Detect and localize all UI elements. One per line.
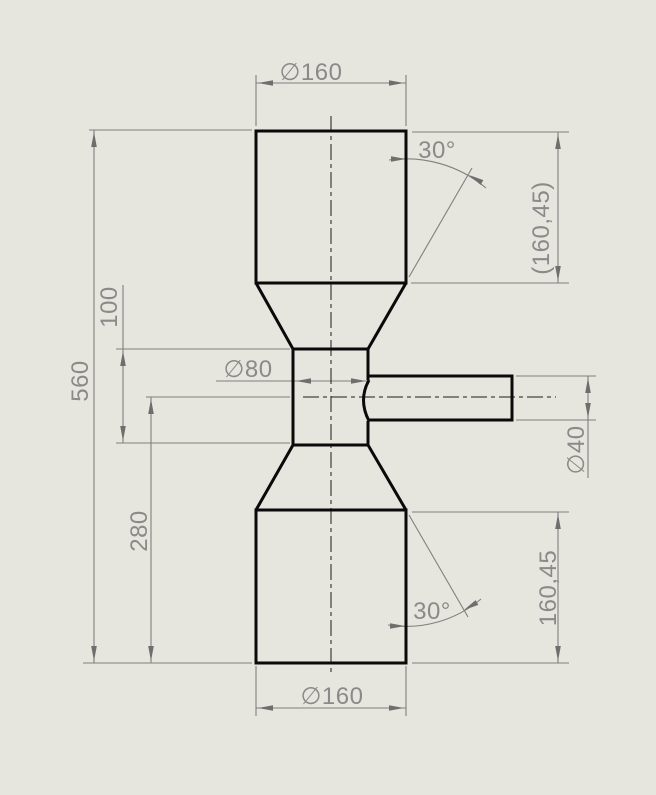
dim-label-stub-diameter[interactable]: ∅40	[563, 425, 590, 474]
dimension-bottom-cylinder-length[interactable]: 160,45	[412, 512, 569, 663]
dim-label-top-diameter[interactable]: ∅160	[280, 59, 343, 86]
dimension-stub-diameter[interactable]: ∅40	[516, 376, 596, 478]
engineering-drawing: ∅160 (160,45) 30° ∅40 ∅80 560	[0, 0, 656, 795]
dim-label-top-angle[interactable]: 30°	[418, 137, 456, 164]
dim-label-top-cylinder-length[interactable]: (160,45)	[528, 181, 555, 274]
dim-label-overall-length[interactable]: 560	[67, 360, 94, 402]
dimension-stub-axis-to-bottom[interactable]: 280	[126, 397, 290, 663]
stub-edge	[369, 376, 512, 420]
dimension-bottom-diameter[interactable]: ∅160	[256, 666, 406, 716]
dim-label-neck-diameter[interactable]: ∅80	[223, 356, 272, 383]
dim-label-bottom-cylinder-length[interactable]: 160,45	[535, 550, 562, 626]
dim-label-bottom-angle[interactable]: 30°	[413, 598, 451, 625]
dim-label-neck-length[interactable]: 100	[96, 286, 123, 328]
dimension-top-diameter[interactable]: ∅160	[256, 59, 406, 126]
dim-label-bottom-diameter[interactable]: ∅160	[301, 683, 364, 710]
dimension-bottom-angle[interactable]: 30°	[388, 515, 481, 629]
cad-drawing-canvas[interactable]: ∅160 (160,45) 30° ∅40 ∅80 560	[0, 0, 656, 795]
stub-intersection-curve	[364, 380, 370, 421]
centerlines	[303, 116, 556, 676]
dimension-top-angle[interactable]: 30°	[389, 137, 486, 277]
dim-label-stub-axis-to-bottom[interactable]: 280	[126, 510, 153, 552]
